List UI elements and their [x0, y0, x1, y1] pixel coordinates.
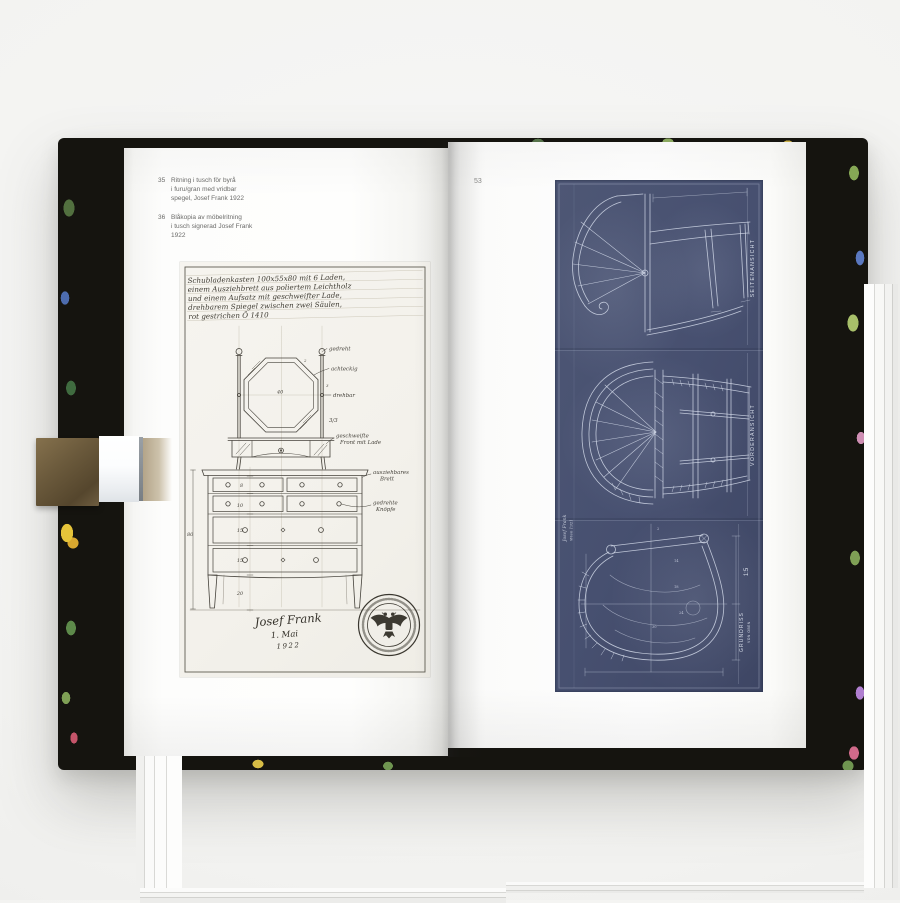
signature-name: Josef Frank [252, 611, 322, 630]
caption-text: Blåkopia av möbelritning i tusch signera… [171, 213, 252, 240]
left-page: 35 Ritning i tusch för byrå i furu/gran … [124, 148, 448, 756]
label-ausziehbar-2: Brett [379, 477, 395, 483]
bp-dim-c: 18 [674, 585, 679, 589]
caption-block: 35 Ritning i tusch för byrå i furu/gran … [158, 176, 278, 250]
page-edges-bottom-left [140, 888, 506, 903]
bp-signature-name: Josef Frank [562, 514, 568, 542]
label-achteckig: achteckig [331, 367, 358, 373]
chest-of-drawers [190, 470, 420, 610]
dimension-lines [191, 470, 254, 610]
page-clip-brass-fade [143, 438, 172, 501]
bp-label-plan-sub: VON OBEN [747, 621, 751, 643]
caption-entry-35: 35 Ritning i tusch för byrå i furu/gran … [158, 176, 278, 203]
label-ausziehbar-1: ausziehbares [373, 470, 409, 476]
label-geschweifte-1: geschweifte [336, 434, 369, 440]
dim-d5: 20 [236, 591, 243, 597]
dim-mark-2: 2 [303, 358, 307, 363]
drawer-knobs [226, 483, 342, 563]
label-knoepfe-2: Knöpfe [375, 507, 395, 513]
dim-chest-height: 80 [187, 532, 194, 538]
bp-dim-b: 14 [674, 559, 679, 563]
bp-dim-d: 24 [679, 611, 684, 615]
label-geschweifte-2: Front mit Lade [339, 440, 381, 446]
bp-label-front: VORDERANSICHT [750, 404, 756, 466]
caption-entry-36: 36 Blåkopia av möbelritning i tusch sign… [158, 213, 278, 240]
chair-blueprint: 2 14 18 24 30 SEITENANSICHT VORDERANSICH… [555, 180, 763, 692]
dim-d1: 8 [240, 483, 243, 489]
dim-d4: 15 [237, 558, 243, 564]
eagle-stamp [359, 595, 420, 656]
caption-number: 36 [158, 213, 171, 240]
signature-date-2: 1922 [276, 641, 300, 651]
dim-mirror-width: 40 [276, 390, 284, 396]
ink-drawing-plate: Schubladenkasten 100x55x80 mit 6 Laden, … [180, 262, 430, 677]
page-number: 53 [474, 178, 482, 185]
mirror-platform [228, 438, 334, 469]
dim-d2: 10 [237, 503, 243, 509]
drawing-title-line5: rot gestrichen Ö 1410 [188, 310, 269, 321]
page-edges-right [864, 284, 898, 888]
dim-mark-3: 3 [326, 383, 329, 388]
page-edges-bottom-right [506, 882, 864, 893]
photo-backdrop: 35 Ritning i tusch för byrå i furu/gran … [0, 0, 900, 900]
bp-scale: 1:5 [744, 567, 750, 576]
label-drehbar: drehbar [333, 393, 355, 399]
bp-dim-e: 30 [652, 625, 657, 629]
label-gedreht: gedreht [329, 347, 351, 353]
bp-dim-a: 2 [657, 527, 659, 531]
caption-number: 35 [158, 176, 171, 203]
label-ratio: 3/3 [329, 418, 338, 424]
dresser-drawing: Schubladenkasten 100x55x80 mit 6 Laden, … [180, 262, 430, 677]
dim-d3: 15 [237, 528, 243, 534]
bp-label-plan: GRUNDRISS [739, 612, 745, 652]
page-clip-brass-block [36, 438, 99, 506]
book-cover: 35 Ritning i tusch för byrå i furu/gran … [58, 138, 868, 770]
caption-text: Ritning i tusch för byrå i furu/gran med… [171, 176, 244, 203]
page-clip-highlight [99, 436, 139, 502]
bp-signature-place: Wien 1921 [569, 519, 574, 541]
signature-date-1: 1. Mai [271, 629, 299, 641]
right-page: 53 [448, 142, 806, 748]
label-knoepfe-1: gedrehte [373, 501, 398, 507]
bp-label-side: SEITENANSICHT [750, 239, 756, 297]
